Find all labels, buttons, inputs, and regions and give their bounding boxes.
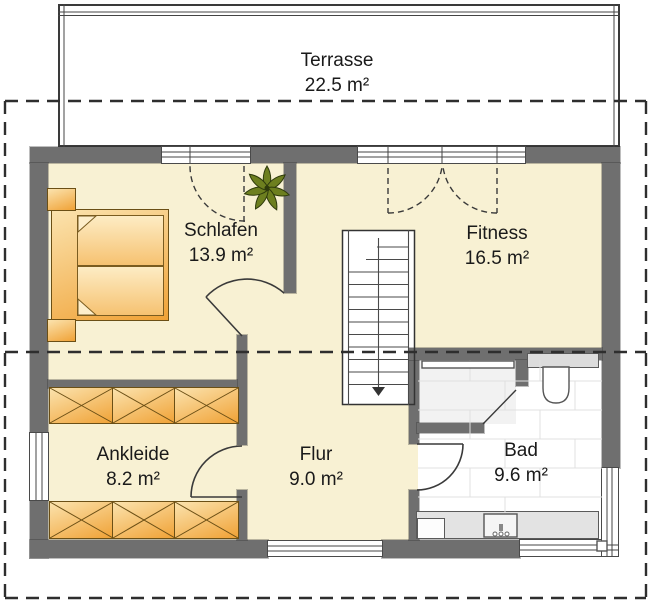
wall-shower-stub [417, 423, 484, 433]
wall [30, 163, 48, 433]
mattress [78, 216, 163, 265]
room-area: 22.5 m² [301, 73, 374, 98]
wardrobe-cell [113, 388, 175, 423]
nightstand [48, 320, 75, 341]
wall [525, 147, 620, 163]
terrace-door-fitness [358, 147, 525, 163]
wall-schlafen-hall [284, 163, 296, 293]
window-bad-right [602, 468, 618, 556]
wardrobe-cell [175, 502, 238, 538]
room-name: Terrasse [301, 48, 374, 73]
terrace-door-schlafen [162, 147, 250, 163]
nightstand [48, 189, 75, 210]
room-name: Fitness [465, 221, 529, 246]
room-label-bad: Bad 9.6 m² [494, 438, 548, 488]
window-left [30, 433, 48, 500]
wall [382, 540, 520, 558]
wall [250, 147, 358, 163]
window-flur [268, 541, 382, 556]
wall-schlafen-ankleide [48, 380, 237, 388]
wall [30, 147, 162, 163]
wall [30, 540, 268, 558]
room-name: Flur [289, 442, 343, 467]
room-label-ankleide: Ankleide 8.2 m² [97, 442, 170, 492]
toilet-cistern [528, 354, 598, 367]
wall-shower-partition [516, 360, 528, 386]
room-label-fitness: Fitness 16.5 m² [465, 221, 529, 271]
room-area: 8.2 m² [97, 467, 170, 492]
room-label-flur: Flur 9.0 m² [289, 442, 343, 492]
room-name: Bad [494, 438, 548, 463]
room-area: 9.0 m² [289, 467, 343, 492]
wall-flur-ankleide [237, 335, 247, 445]
wall-flur-ankleide [237, 490, 247, 540]
room-area: 9.6 m² [494, 463, 548, 488]
room-area: 16.5 m² [465, 246, 529, 271]
wardrobe-cell [50, 502, 113, 538]
wardrobe-cell [50, 388, 113, 423]
wardrobe-cell [175, 388, 238, 423]
vanity-counter [417, 512, 598, 538]
room-label-terrasse: Terrasse 22.5 m² [301, 48, 374, 98]
room-name: Schlafen [184, 218, 258, 243]
storage-box [418, 519, 444, 538]
stairwell [342, 230, 415, 405]
room-name: Ankleide [97, 442, 170, 467]
room-area: 13.9 m² [184, 243, 258, 268]
wall [602, 163, 620, 468]
floor-plan: Terrasse 22.5 m² Schlafen 13.9 m² Fitnes… [0, 0, 650, 604]
wardrobe-cell [113, 502, 175, 538]
room-label-schlafen: Schlafen 13.9 m² [184, 218, 258, 268]
mattress [78, 267, 163, 315]
shower-area [417, 360, 516, 424]
